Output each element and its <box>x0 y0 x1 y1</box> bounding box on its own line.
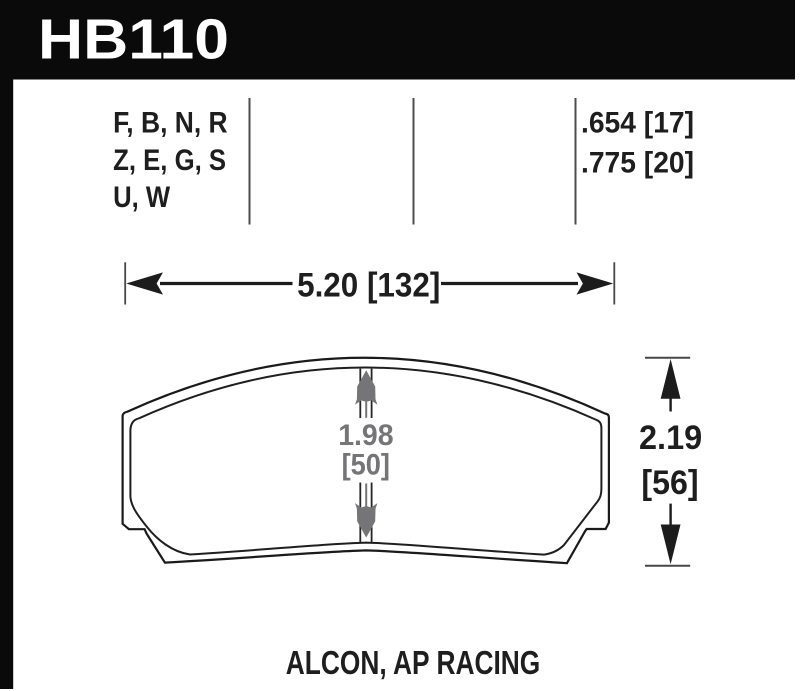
svg-text:[56]: [56] <box>641 464 698 502</box>
svg-text:Z, E, G, S: Z, E, G, S <box>113 144 226 177</box>
svg-text:HB110: HB110 <box>38 7 229 70</box>
svg-text:ALCON, AP RACING: ALCON, AP RACING <box>286 645 541 682</box>
svg-text:F, B, N, R: F, B, N, R <box>113 106 228 139</box>
svg-text:5.20 [132]: 5.20 [132] <box>297 267 440 305</box>
svg-text:1.98: 1.98 <box>338 419 393 452</box>
svg-text:[50]: [50] <box>342 449 390 482</box>
svg-text:.775 [20]: .775 [20] <box>581 147 694 180</box>
svg-text:.654 [17]: .654 [17] <box>581 106 694 139</box>
svg-text:2.19: 2.19 <box>639 419 702 457</box>
svg-text:U, W: U, W <box>113 181 171 214</box>
